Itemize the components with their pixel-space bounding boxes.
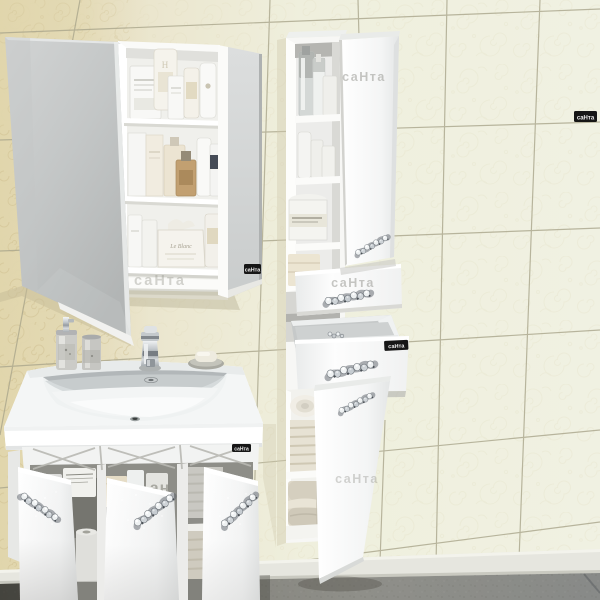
svg-text:саНта: саНта [577, 116, 595, 122]
svg-text:H: H [162, 60, 169, 70]
svg-text:саНта: саНта [335, 472, 379, 486]
svg-text:саНта: саНта [331, 276, 375, 290]
svg-text:Le Blanc: Le Blanc [169, 244, 192, 250]
svg-text:саНта: саНта [245, 268, 262, 274]
svg-text:саНта: саНта [342, 70, 386, 84]
svg-text:саНта: саНта [234, 446, 249, 452]
svg-text:саНта: саНта [134, 273, 186, 289]
svg-text:саНта: саНта [388, 343, 405, 350]
